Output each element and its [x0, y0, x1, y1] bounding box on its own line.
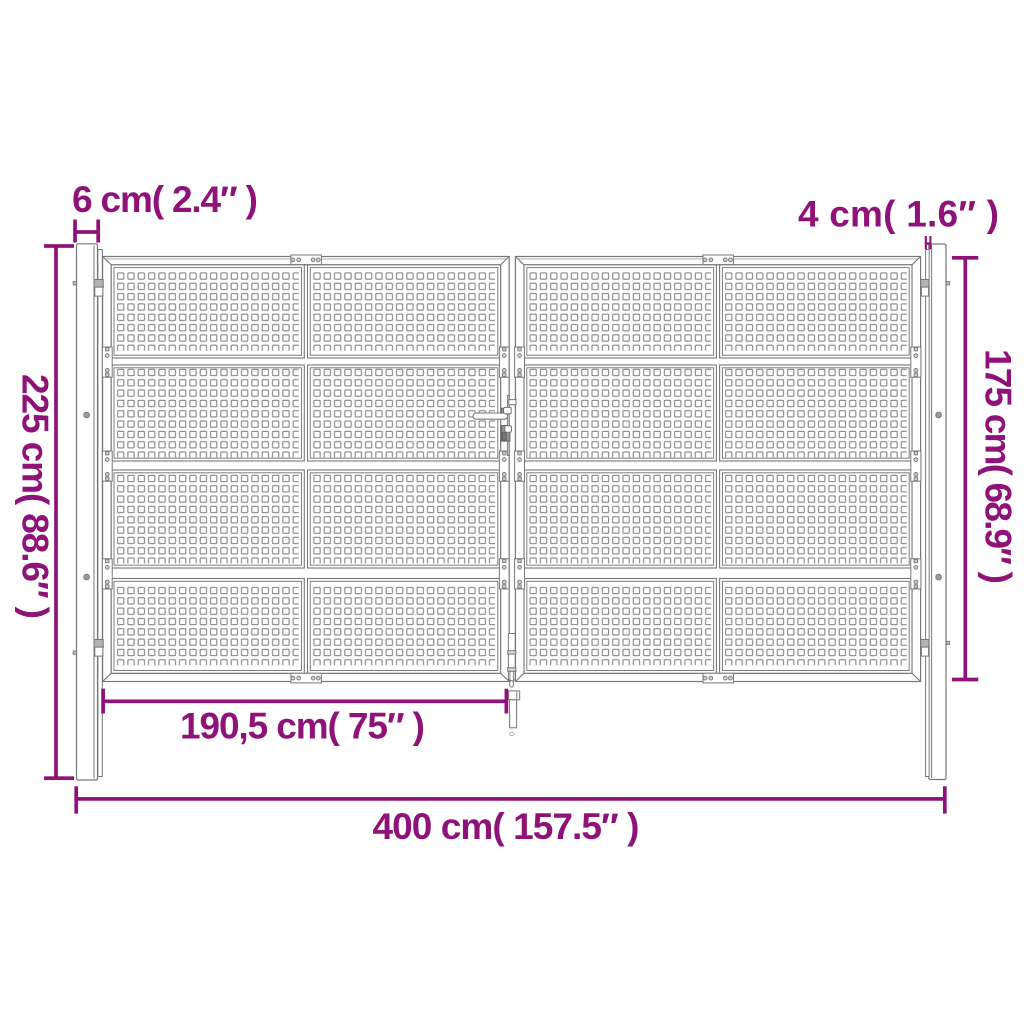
svg-text:4 cm( 1.6″ ): 4 cm( 1.6″ ) [798, 194, 999, 235]
svg-text:225 cm( 88.6″ ): 225 cm( 88.6″ ) [15, 374, 56, 619]
svg-text:400 cm( 157.5″ ): 400 cm( 157.5″ ) [373, 806, 640, 847]
svg-text:175 cm( 68.9″ ): 175 cm( 68.9″ ) [978, 349, 1019, 584]
svg-text:6 cm( 2.4″ ): 6 cm( 2.4″ ) [72, 179, 258, 220]
svg-text:190,5 cm( 75″ ): 190,5 cm( 75″ ) [180, 706, 425, 747]
